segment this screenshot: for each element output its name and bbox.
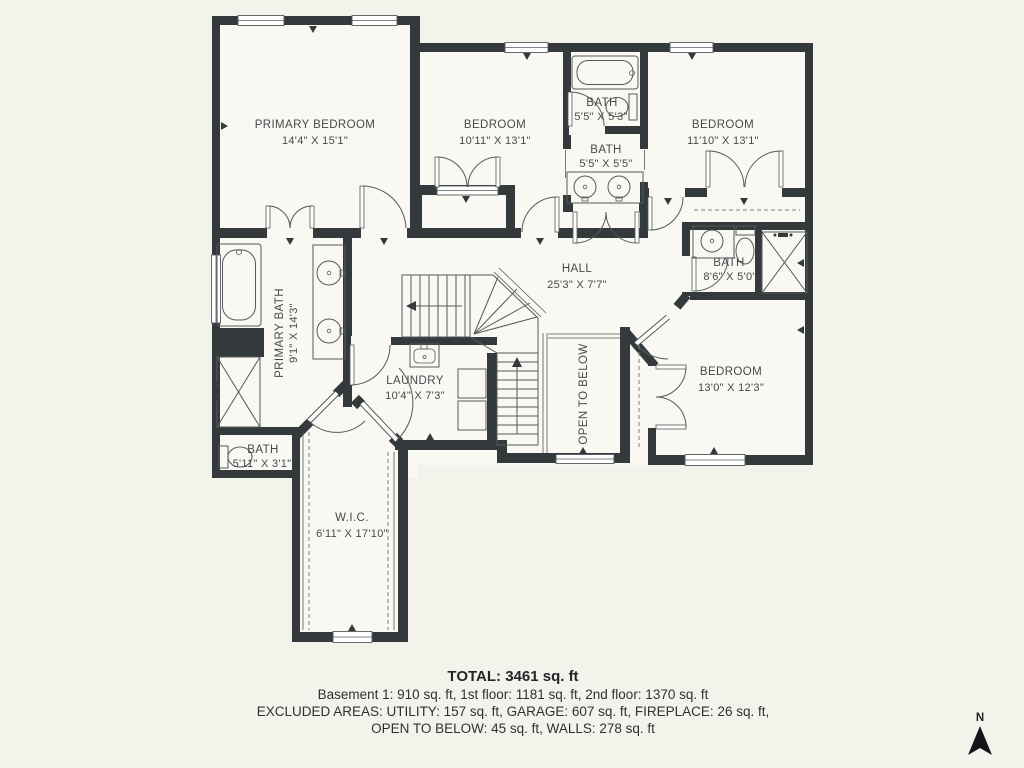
room-label-hall: HALL	[562, 263, 593, 275]
summary-total: TOTAL: 3461 sq. ft	[447, 668, 578, 685]
room-dims-primary-bath: 9'1" X 14'3"	[288, 303, 300, 363]
room-label-open-to-below: OPEN TO BELOW	[578, 343, 590, 444]
room-dims-bath-1: 5'5" X 5'3"	[574, 111, 627, 123]
room-label-primary-bath: PRIMARY BATH	[274, 288, 286, 378]
room-dims-bath-4: 5'11" X 3'1"	[233, 458, 292, 470]
room-label-wic: W.I.C.	[335, 512, 369, 524]
room-dims-bath-2: 5'5" X 5'5"	[579, 158, 632, 170]
room-label-primary-bedroom: PRIMARY BEDROOM	[255, 119, 376, 131]
summary-excluded-1: EXCLUDED AREAS: UTILITY: 157 sq. ft, GAR…	[257, 704, 769, 719]
room-label-bedroom-4: BEDROOM	[700, 366, 762, 378]
room-dims-primary-bedroom: 14'4" X 15'1"	[282, 135, 348, 147]
room-dims-bedroom-3: 11'10" X 13'1"	[687, 135, 759, 147]
room-label-bath-1: BATH	[586, 97, 617, 109]
room-dims-bedroom-4: 13'0" X 12'3"	[698, 382, 764, 394]
room-label-laundry: LAUNDRY	[386, 375, 444, 387]
room-dims-bath-3: 8'6" X 5'0"	[703, 271, 756, 283]
room-dims-laundry: 10'4" X 7'3"	[385, 390, 445, 402]
room-label-bedroom-3: BEDROOM	[692, 119, 754, 131]
area-summary: TOTAL: 3461 sq. ft Basement 1: 910 sq. f…	[257, 668, 769, 736]
floorplan-drawing: PRIMARY BEDROOM 14'4" X 15'1" BEDROOM 10…	[0, 0, 1024, 768]
room-label-bath-4: BATH	[247, 444, 278, 456]
north-arrow-icon	[968, 726, 992, 755]
summary-excluded-2: OPEN TO BELOW: 45 sq. ft, WALLS: 278 sq.…	[371, 721, 655, 736]
room-dims-bedroom-2: 10'11" X 13'1"	[459, 135, 531, 147]
room-label-bedroom-2: BEDROOM	[464, 119, 526, 131]
room-dims-hall: 25'3" X 7'7"	[547, 279, 607, 291]
floorplan-page: PRIMARY BEDROOM 14'4" X 15'1" BEDROOM 10…	[0, 0, 1024, 768]
room-label-bath-2: BATH	[590, 144, 621, 156]
compass-north-label: N	[976, 712, 984, 724]
compass: N	[968, 712, 992, 755]
room-dims-wic: 6'11" X 17'10"	[316, 528, 388, 540]
room-label-bath-3: BATH	[713, 257, 744, 269]
summary-floors: Basement 1: 910 sq. ft, 1st floor: 1181 …	[318, 687, 709, 702]
floor-areas	[212, 16, 813, 642]
